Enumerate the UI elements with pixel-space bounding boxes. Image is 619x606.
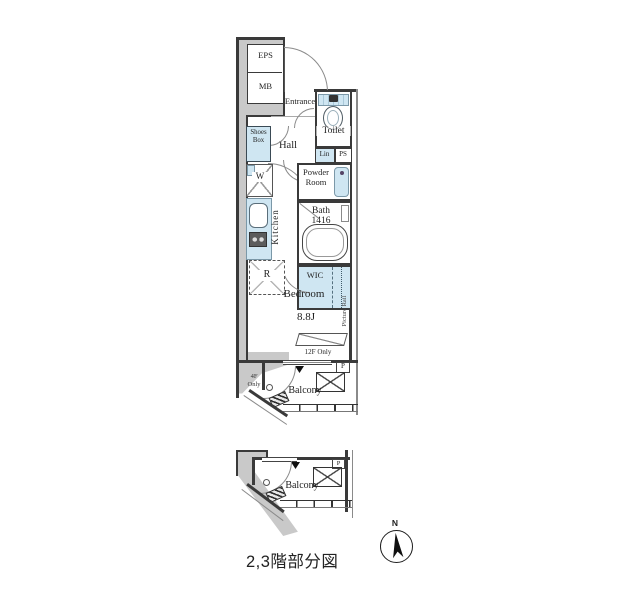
pipe-space-label: PS [334, 151, 352, 159]
bedroom-label: Bedroom [272, 289, 336, 301]
kitchen-label: Kitchen [271, 194, 283, 260]
shoes-box-label-1: Shoes [245, 129, 272, 136]
wall-top-left [236, 37, 285, 40]
note-4f-only-1: 4F [240, 373, 268, 380]
wall-left-outer [236, 37, 239, 398]
powder-sink-faucet [340, 171, 344, 175]
toilet-seat [327, 110, 339, 126]
note-12f-only: 12F Only [288, 349, 348, 357]
wall-right-outer-line [356, 89, 358, 415]
p-label-lower: P [332, 460, 345, 467]
wic-divider [332, 267, 333, 308]
washer-label: W [252, 172, 268, 182]
floor-plan: EPS MB Entrance Hall Toilet Lin PS Powde… [0, 0, 619, 606]
balcony-railing-lower [280, 500, 352, 508]
balcony-label-lower: Balcony [272, 481, 332, 492]
mb-label: MB [247, 82, 284, 91]
shoes-box-label-2: Box [245, 137, 272, 144]
toilet-label: Toilet [316, 126, 351, 136]
powder-label-1: Powder [298, 168, 334, 177]
caption: 2,3階部分図 [246, 548, 366, 572]
entry-direction-marker-upper [295, 366, 304, 373]
balcony-window-track [283, 362, 332, 363]
compass: N [378, 519, 422, 577]
shelf-12f [295, 333, 348, 346]
wall-bedroom-bottom-left [236, 360, 284, 363]
entrance-label: Entrance [282, 97, 318, 106]
entrance-door-arc [284, 47, 328, 92]
lower-gray-left-line [236, 450, 238, 476]
eps-mb-divider [248, 72, 282, 73]
balcony-label-upper: Balcony [275, 386, 335, 397]
bathtub-inner [306, 228, 344, 257]
eps-label: EPS [247, 51, 284, 60]
toilet-flush-button [329, 95, 338, 102]
lower-left-wall [252, 457, 255, 485]
lower-gray-top-line [236, 450, 268, 452]
bedroom-size-label: 8.8J [280, 312, 332, 324]
bath-counter [341, 205, 349, 222]
entry-direction-marker-lower [291, 462, 300, 469]
fridge-label: R [258, 270, 276, 281]
powder-label-2: Room [298, 178, 334, 187]
kitchen-sink [249, 203, 268, 228]
p-label-upper: P [336, 363, 350, 371]
drain-circle-lower [263, 479, 270, 486]
note-4f-only-2: Only [240, 381, 268, 388]
kitchen-stove [249, 232, 267, 247]
toilet-door-arc [294, 108, 314, 128]
compass-north-label: N [385, 519, 405, 528]
balcony-railing-upper [283, 404, 358, 412]
linen-label: Lin [315, 151, 334, 159]
